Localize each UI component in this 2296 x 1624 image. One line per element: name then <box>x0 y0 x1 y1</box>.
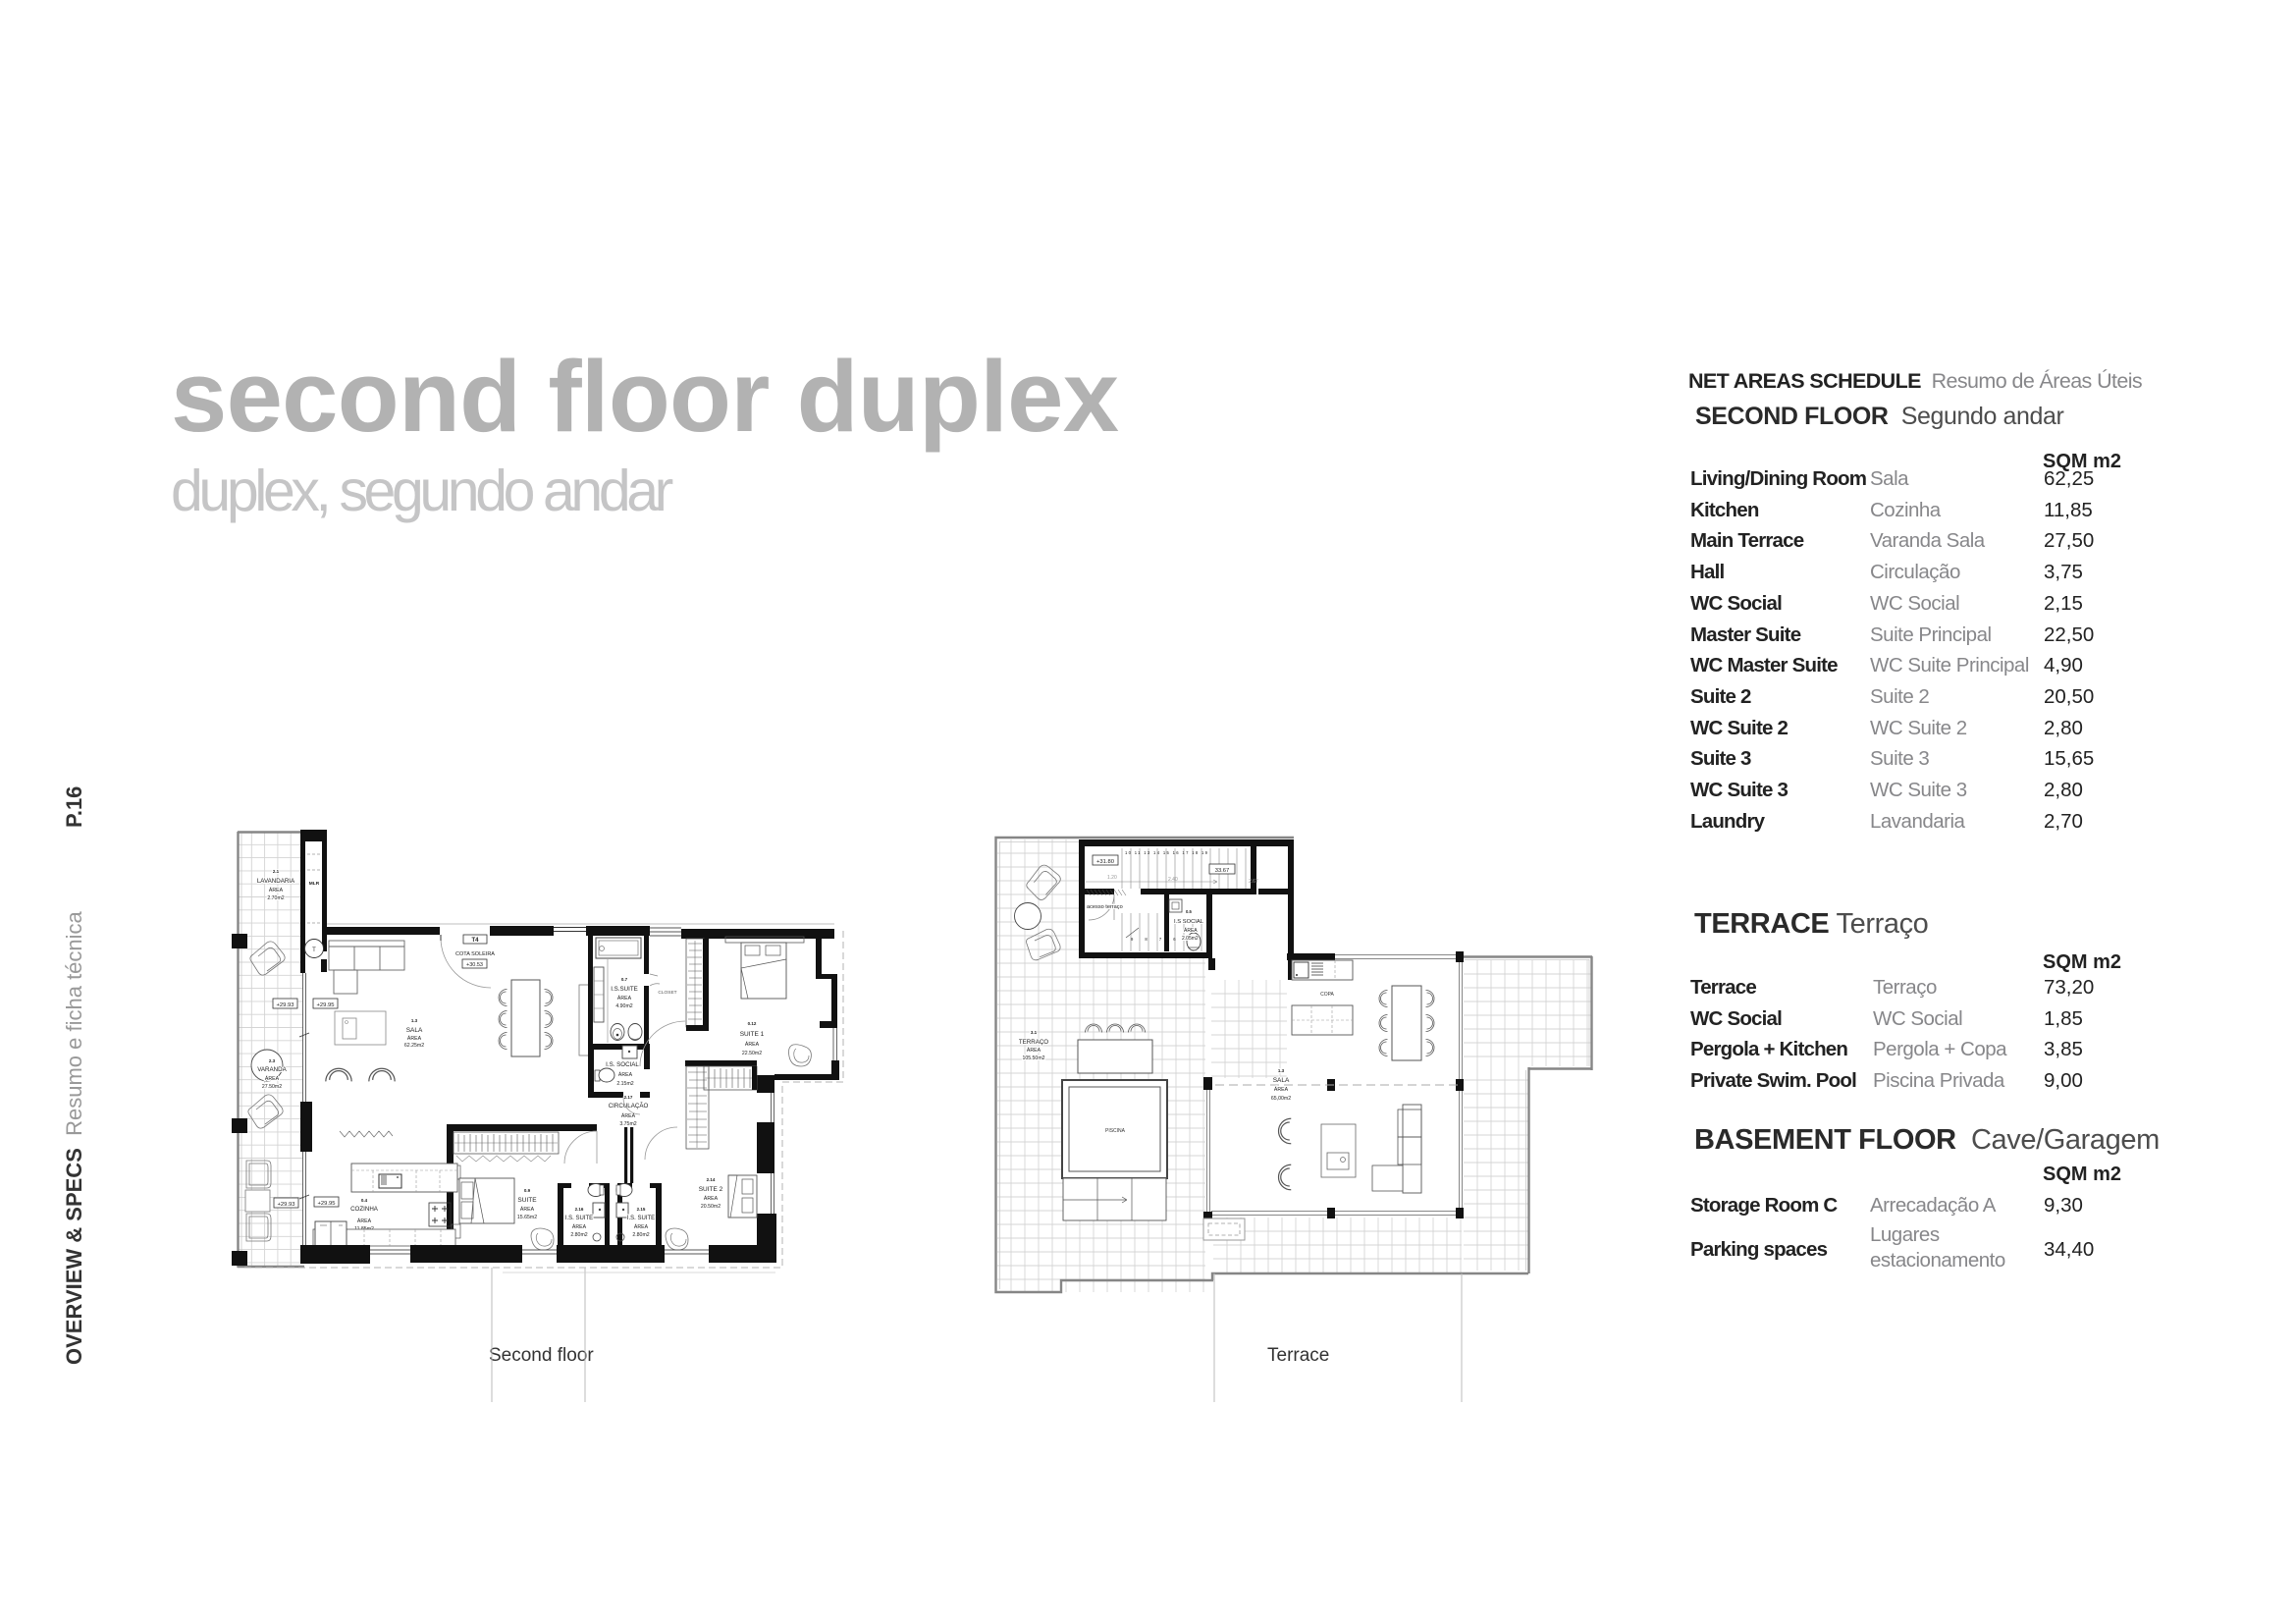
svg-text:ÁREA: ÁREA <box>1184 927 1198 934</box>
svg-text:CIRCULAÇÃO: CIRCULAÇÃO <box>609 1103 649 1110</box>
svg-text:I.S. SUITE: I.S. SUITE <box>565 1216 593 1221</box>
svg-text:SUITE: SUITE <box>517 1197 537 1204</box>
svg-text:2.17: 2.17 <box>624 1095 633 1100</box>
svg-text:ÁREA: ÁREA <box>1027 1047 1041 1054</box>
svg-text:0.7: 0.7 <box>621 977 628 982</box>
svg-text:105.50m2: 105.50m2 <box>1022 1056 1044 1061</box>
svg-text:2.3: 2.3 <box>269 1058 276 1063</box>
svg-text:1.3: 1.3 <box>1278 1068 1285 1073</box>
svg-text:VARANDA: VARANDA <box>257 1066 287 1073</box>
svg-text:20.50m2: 20.50m2 <box>701 1204 721 1210</box>
svg-text:MLR: MLR <box>309 881 320 887</box>
svg-text:15.65m2: 15.65m2 <box>517 1215 537 1220</box>
svg-text:T: T <box>312 947 316 953</box>
svg-text:2.15: 2.15 <box>637 1207 646 1212</box>
svg-text:ÁREA: ÁREA <box>269 887 284 893</box>
svg-text:ÁREA: ÁREA <box>1274 1086 1289 1093</box>
svg-text:2.80m2: 2.80m2 <box>570 1232 587 1238</box>
svg-text:SALA: SALA <box>1273 1077 1290 1084</box>
svg-text:1.20: 1.20 <box>1107 875 1117 881</box>
svg-text:ÁREA: ÁREA <box>407 1035 422 1042</box>
svg-text:2.1: 2.1 <box>273 869 280 874</box>
svg-text:ÁREA: ÁREA <box>520 1206 535 1213</box>
svg-text:0.12: 0.12 <box>748 1021 757 1026</box>
svg-text:LAVANDARIA: LAVANDARIA <box>257 878 295 885</box>
svg-text:+29.93: +29.93 <box>278 1202 295 1208</box>
svg-text:+29.95: +29.95 <box>317 1002 335 1008</box>
svg-text:4.90m2: 4.90m2 <box>615 1003 632 1009</box>
svg-text:ÁREA: ÁREA <box>357 1218 372 1224</box>
svg-text:COTA SOLEIRA: COTA SOLEIRA <box>455 951 495 957</box>
svg-text:+29.93: +29.93 <box>277 1002 294 1008</box>
svg-text:+31.80: +31.80 <box>1096 859 1114 865</box>
svg-text:2.80m2: 2.80m2 <box>632 1232 649 1238</box>
svg-text:0.4: 0.4 <box>361 1198 368 1203</box>
svg-text:PISCINA: PISCINA <box>1105 1128 1126 1134</box>
svg-text:ÁREA: ÁREA <box>634 1223 649 1230</box>
svg-text:+30.53: +30.53 <box>466 962 483 968</box>
svg-text:ÁREA: ÁREA <box>745 1041 760 1048</box>
svg-text:+29.95: +29.95 <box>318 1201 336 1207</box>
svg-text:2.67: 2.67 <box>1249 879 1258 885</box>
svg-text:0.9: 0.9 <box>524 1188 531 1193</box>
svg-text:2.05m2: 2.05m2 <box>1182 936 1199 942</box>
svg-text:I.S.SUITE: I.S.SUITE <box>611 986 638 993</box>
svg-text:CLOSET: CLOSET <box>658 990 676 996</box>
svg-text:27.50m2: 27.50m2 <box>262 1084 282 1090</box>
svg-text:I.S SOCIAL: I.S SOCIAL <box>1174 919 1204 925</box>
svg-text:acesso terraço: acesso terraço <box>1087 904 1123 910</box>
svg-text:2.70m2: 2.70m2 <box>267 895 284 901</box>
svg-text:ÁREA: ÁREA <box>617 995 632 1001</box>
svg-text:ÁREA: ÁREA <box>265 1075 280 1082</box>
svg-text:ÁREA: ÁREA <box>618 1071 633 1078</box>
svg-text:SUITE 1: SUITE 1 <box>740 1031 765 1038</box>
svg-text:SUITE 2: SUITE 2 <box>699 1186 723 1193</box>
svg-text:TERRAÇO: TERRAÇO <box>1019 1039 1048 1046</box>
svg-text:COPA: COPA <box>1320 992 1334 998</box>
svg-text:62.25m2: 62.25m2 <box>404 1043 424 1049</box>
svg-text:ÁREA: ÁREA <box>704 1195 719 1202</box>
svg-text:2.40: 2.40 <box>1168 877 1178 883</box>
svg-text:3.75m2: 3.75m2 <box>619 1121 636 1127</box>
svg-text:2.14: 2.14 <box>707 1177 716 1182</box>
svg-text:2.15m2: 2.15m2 <box>616 1081 633 1087</box>
svg-text:1.3: 1.3 <box>411 1018 418 1023</box>
svg-text:T4: T4 <box>471 938 479 944</box>
svg-text:ÁREA: ÁREA <box>572 1223 587 1230</box>
svg-text:I.S. SUITE: I.S. SUITE <box>627 1216 655 1221</box>
svg-text:33.67: 33.67 <box>1215 868 1230 874</box>
svg-text:COZINHA: COZINHA <box>350 1206 379 1213</box>
svg-text:65,00m2: 65,00m2 <box>1271 1096 1291 1102</box>
svg-text:I.S. SOCIAL: I.S. SOCIAL <box>606 1061 639 1068</box>
svg-text:22.50m2: 22.50m2 <box>742 1051 762 1056</box>
svg-text:SALA: SALA <box>406 1027 423 1034</box>
svg-text:10 11 13 14 15 16 17 18 19: 10 11 13 14 15 16 17 18 19 <box>1125 850 1208 855</box>
svg-text:0.5: 0.5 <box>1186 909 1192 914</box>
svg-text:2.16: 2.16 <box>575 1207 584 1212</box>
svg-text:3.1: 3.1 <box>1031 1030 1038 1035</box>
